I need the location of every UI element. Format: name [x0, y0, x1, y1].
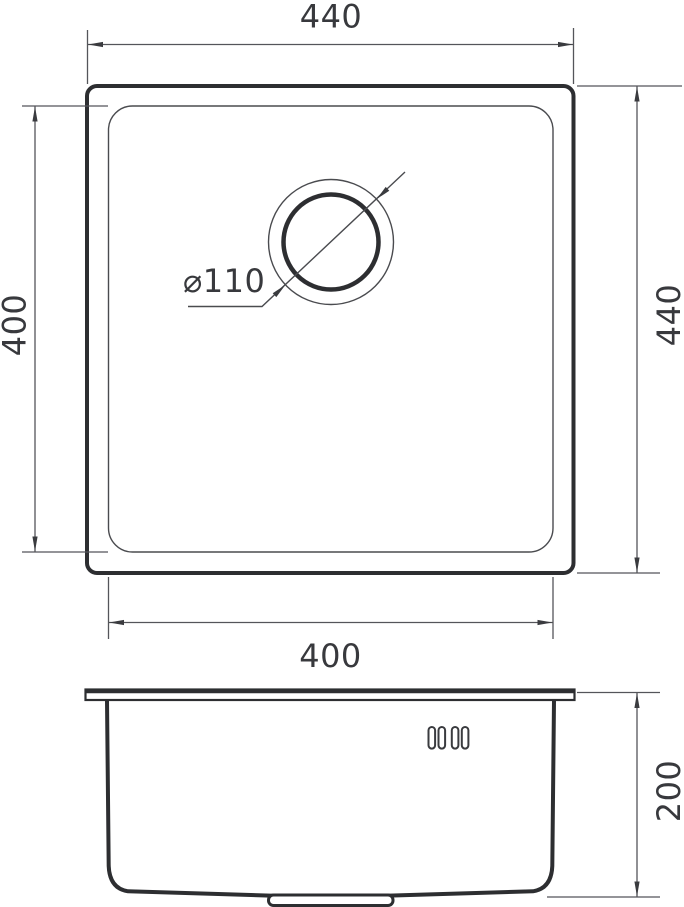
- dimension-arrowhead-up-icon: [32, 107, 37, 122]
- dimension-arrowhead-down-icon: [32, 537, 37, 552]
- inner-width-label: 400: [299, 637, 362, 675]
- dimension-arrowhead-down-icon: [634, 558, 639, 573]
- drawing-svg: ⌀110 440 440 400: [0, 0, 684, 907]
- dim-inner-height: 400: [0, 106, 108, 552]
- sink-outer-edge: [87, 86, 574, 573]
- dimension-arrowhead-left-icon: [88, 42, 103, 47]
- sink-technical-drawing: ⌀110 440 440 400: [0, 0, 684, 907]
- drain-diameter-label: ⌀110: [183, 262, 265, 300]
- dimension-arrowhead-right-icon: [558, 42, 573, 47]
- dimension-arrowhead-left-icon: [109, 620, 124, 625]
- outer-width-label: 440: [300, 0, 363, 36]
- dimension-arrowhead-up-icon: [634, 87, 639, 102]
- dimension-arrowhead-right-icon: [538, 620, 553, 625]
- outer-height-label: 440: [650, 284, 684, 347]
- top-view: ⌀110: [87, 86, 574, 573]
- dim-inner-width: 400: [109, 577, 554, 675]
- depth-label: 200: [650, 760, 684, 823]
- sink-body-profile: [107, 701, 554, 898]
- dimension-arrowhead-up-icon: [634, 693, 639, 708]
- dim-outer-width: 440: [88, 0, 574, 84]
- leader-arrowhead-lower-icon: [273, 285, 286, 297]
- side-view: [86, 690, 575, 906]
- dim-depth: 200: [547, 693, 684, 898]
- drain-fitting-profile: [269, 895, 394, 906]
- dim-outer-height: 440: [577, 86, 684, 573]
- inner-height-label: 400: [0, 294, 34, 357]
- leader-arrowhead-upper-icon: [377, 187, 390, 199]
- dimension-arrowhead-down-icon: [634, 882, 639, 897]
- sink-inner-basin-edge: [109, 106, 554, 552]
